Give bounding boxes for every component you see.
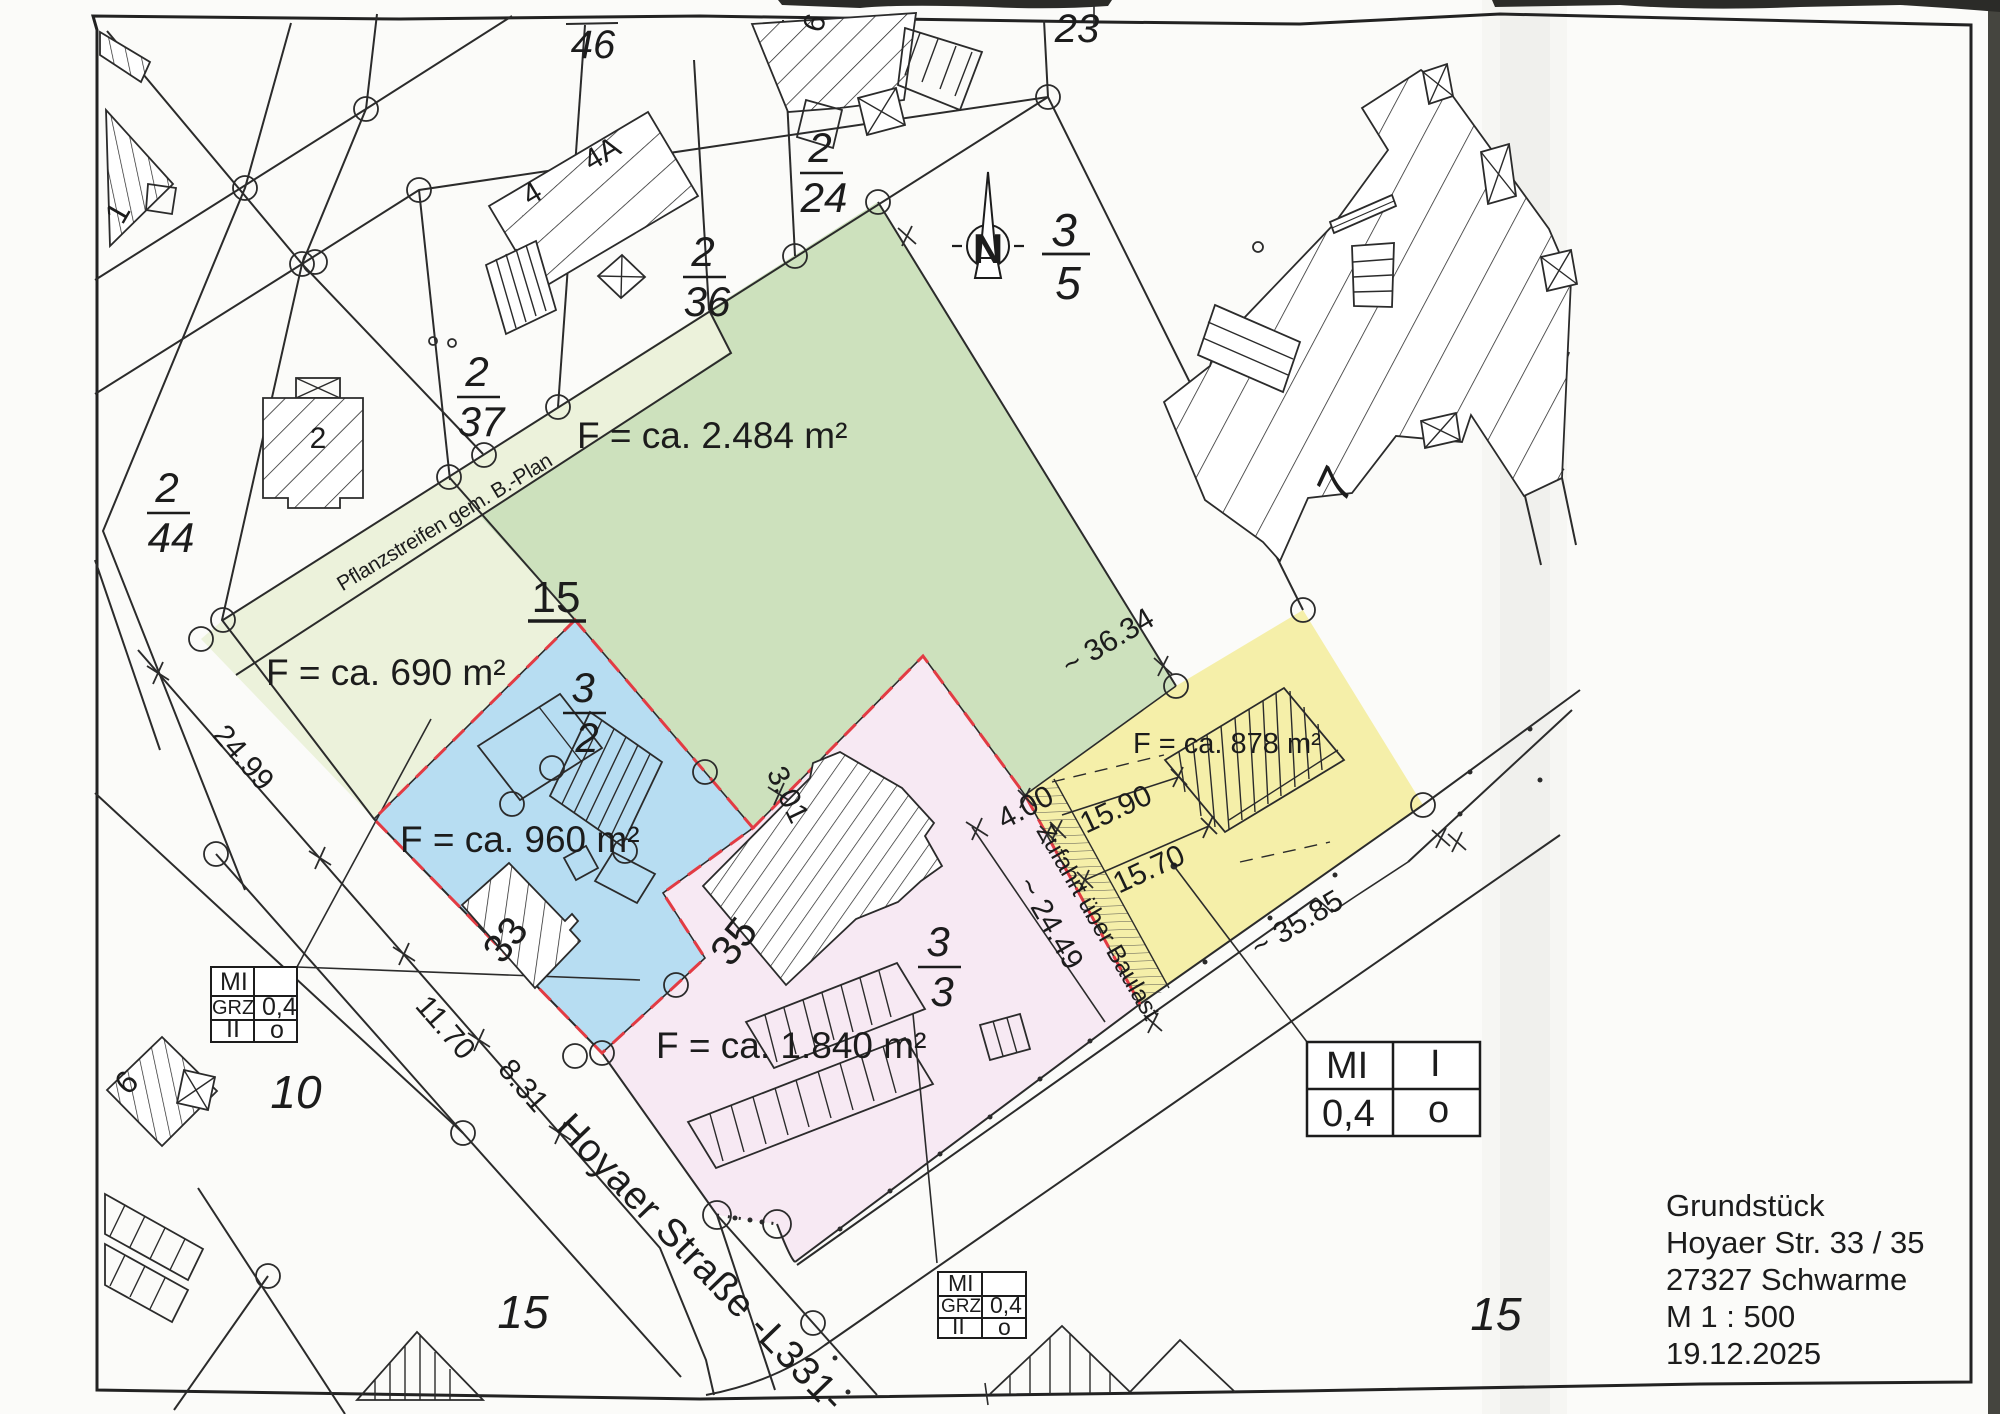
svg-text:36: 36: [684, 278, 731, 325]
svg-text:MI: MI: [948, 1270, 974, 1296]
svg-text:44: 44: [148, 514, 195, 561]
svg-text:II: II: [952, 1313, 965, 1339]
svg-text:Hoyaer Str. 33 / 35: Hoyaer Str. 33 / 35: [1666, 1225, 1924, 1260]
svg-text:F = ca. 690 m²: F = ca. 690 m²: [266, 652, 506, 693]
svg-text:27327 Schwarme: 27327 Schwarme: [1666, 1262, 1907, 1297]
svg-text:19.12.2025: 19.12.2025: [1666, 1336, 1821, 1371]
svg-text:o: o: [1428, 1089, 1449, 1131]
svg-text:MI: MI: [1326, 1045, 1368, 1087]
svg-text:3: 3: [930, 968, 953, 1015]
svg-text:o: o: [270, 1016, 284, 1044]
svg-text:3: 3: [926, 918, 949, 965]
svg-text:37: 37: [458, 398, 506, 445]
svg-text:F = ca. 960 m²: F = ca. 960 m²: [400, 819, 640, 860]
svg-text:5: 5: [1055, 257, 1081, 309]
svg-text:23: 23: [1054, 7, 1100, 51]
svg-text:2: 2: [690, 228, 714, 275]
svg-text:MI: MI: [220, 968, 248, 996]
svg-text:M 1 : 500: M 1 : 500: [1666, 1299, 1795, 1334]
svg-text:3: 3: [1051, 204, 1077, 256]
svg-text:2: 2: [574, 714, 598, 761]
svg-text:15: 15: [532, 573, 581, 622]
svg-text:I: I: [1430, 1043, 1441, 1085]
svg-text:10: 10: [270, 1066, 322, 1118]
svg-text:N: N: [973, 225, 1003, 272]
svg-text:F = ca. 878 m²: F = ca. 878 m²: [1133, 728, 1321, 760]
svg-text:2: 2: [807, 124, 831, 171]
svg-text:F = ca. 2.484 m²: F = ca. 2.484 m²: [577, 415, 847, 456]
svg-text:15: 15: [497, 1286, 549, 1338]
svg-text:0,4: 0,4: [1322, 1093, 1375, 1135]
svg-text:2: 2: [310, 422, 327, 455]
svg-text:o: o: [998, 1314, 1011, 1340]
svg-text:2: 2: [154, 464, 178, 511]
svg-text:F = ca. 1.840 m²: F = ca. 1.840 m²: [656, 1025, 926, 1066]
svg-text:46: 46: [571, 23, 616, 67]
svg-text:II: II: [226, 1015, 240, 1043]
svg-text:Grundstück: Grundstück: [1666, 1188, 1825, 1223]
svg-text:3: 3: [571, 664, 594, 711]
svg-text:2: 2: [464, 348, 488, 395]
svg-text:24: 24: [800, 174, 848, 221]
svg-text:15: 15: [1470, 1288, 1522, 1340]
